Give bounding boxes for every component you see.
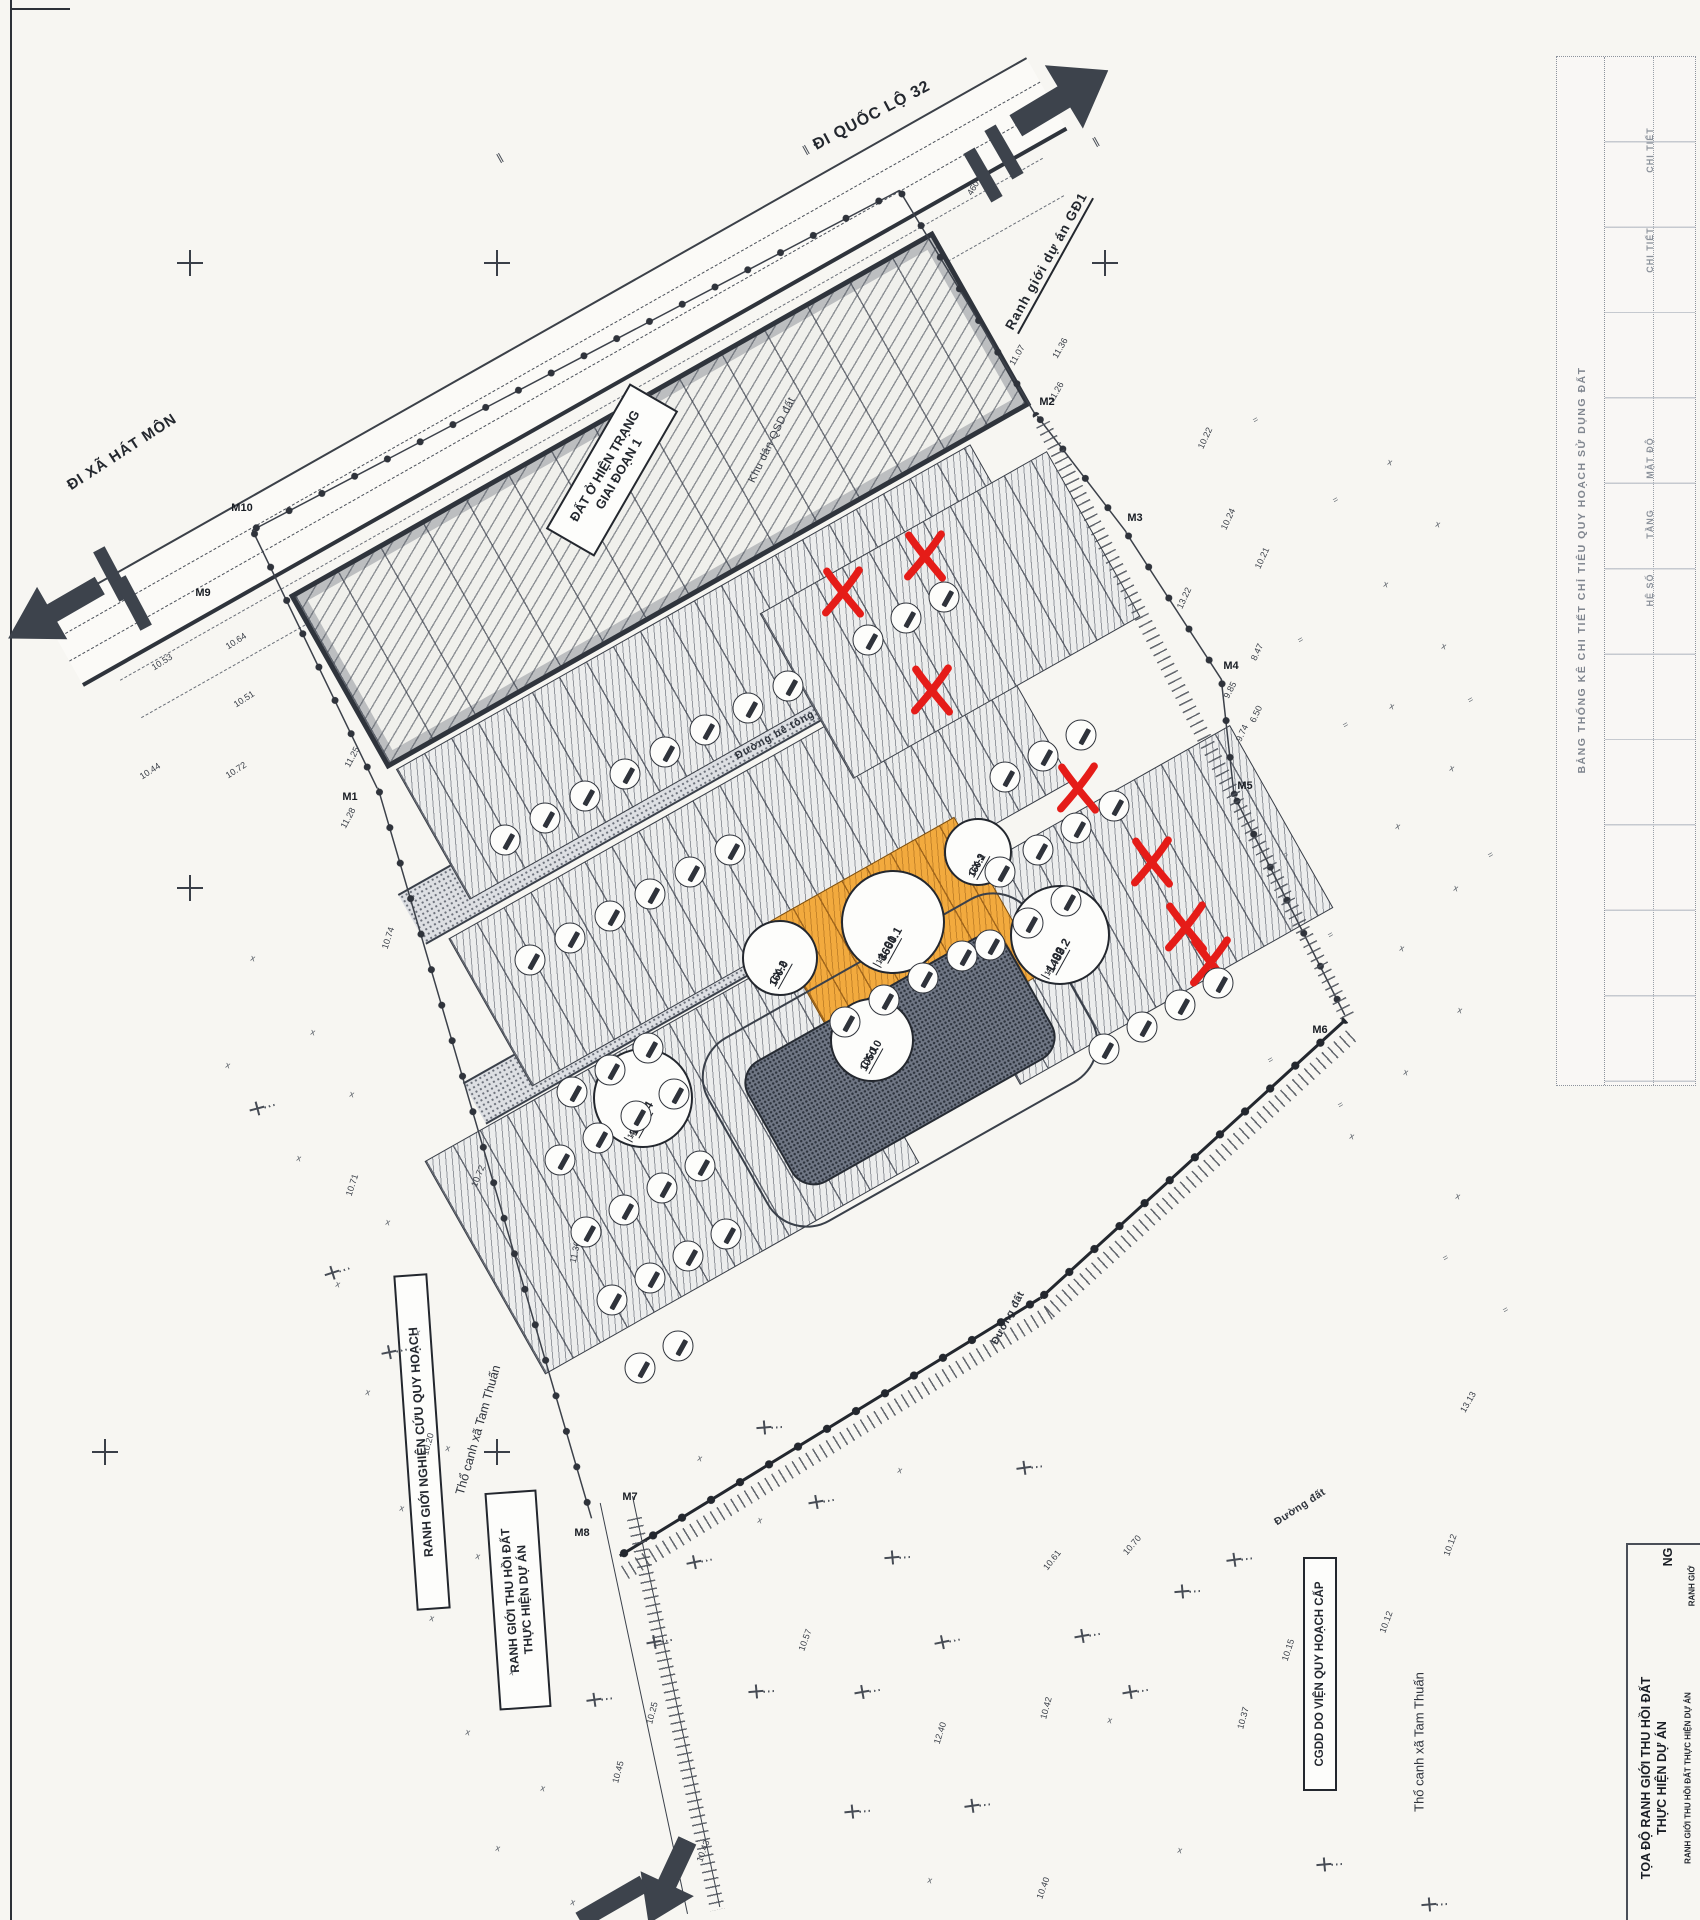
- lot-circle: [853, 625, 884, 656]
- lot-circle: [715, 835, 746, 866]
- vegetation-mark: x: [1435, 519, 1442, 530]
- survey-marker-m1: M1: [342, 791, 357, 803]
- lot-circle: [685, 1151, 716, 1182]
- vegetation-mark: x: [365, 1387, 372, 1398]
- vegetation-mark: x: [1453, 883, 1460, 894]
- site-plan-map: ĐI QUỐC LỘ 32 ĐI XÃ HÁT MÔN Ranh giới dự…: [0, 0, 1700, 1920]
- lot-circle: [975, 930, 1006, 961]
- lot-circle: [515, 945, 546, 976]
- lot-circle: [1066, 720, 1097, 751]
- lot-circle: [675, 857, 706, 888]
- elevation-label: 10.44: [138, 761, 162, 782]
- elevation-label: 10.40: [1034, 1876, 1051, 1901]
- lot-circle: [597, 1285, 628, 1316]
- elevation-label: 12.40: [932, 1721, 948, 1746]
- elevation-label: 10.61: [1041, 1548, 1063, 1572]
- grass-mark: =: [1296, 635, 1305, 646]
- grass-mark: =: [1336, 1100, 1345, 1111]
- grid-cross-icon: [1092, 250, 1118, 276]
- vegetation-mark: x: [1457, 1005, 1464, 1016]
- lot-circle: [929, 582, 960, 613]
- elevation-label: 10.71: [344, 1173, 360, 1198]
- lot-circle: [663, 1331, 694, 1362]
- table-cell: CHI TIẾT: [1645, 127, 1655, 173]
- lot-circle: [1165, 990, 1196, 1021]
- plot-circle-cx2: CX-2 160.0: [742, 920, 818, 996]
- elevation-label: 10.72: [224, 760, 248, 781]
- elevation-label: 10.70: [1121, 1533, 1143, 1557]
- red-x-mark: [909, 664, 955, 716]
- lot-circle: [1013, 908, 1044, 939]
- grass-mark: =: [1501, 1305, 1510, 1316]
- lot-circle: [711, 1219, 742, 1250]
- vegetation-mark: x: [296, 1153, 303, 1164]
- plot-circle-l01-content: L-01 3660.1 13 4: [874, 888, 912, 956]
- lot-circle: [545, 1145, 576, 1176]
- lot-circle: [1127, 1012, 1158, 1043]
- grave-symbol: [933, 1631, 963, 1652]
- embankment-ticks: [1044, 1027, 1361, 1318]
- survey-marker-m9: M9: [195, 587, 210, 599]
- lot-circle: [830, 1007, 861, 1038]
- vegetation-mark: x: [757, 1515, 764, 1526]
- lot-circle: [650, 737, 681, 768]
- plot-area: 1050.0: [857, 1038, 885, 1074]
- vegetation-mark: x: [445, 1443, 452, 1454]
- vegetation-mark: x: [465, 1727, 472, 1738]
- lot-circle: [985, 857, 1016, 888]
- grid-cross-icon: [484, 1439, 510, 1465]
- grass-mark: =: [1441, 1253, 1450, 1264]
- lot-circle: [690, 715, 721, 746]
- elevation-label: 10.37: [1235, 1706, 1250, 1730]
- coordinates-title-line2: THỰC HIỆN DỰ ÁN: [1654, 1677, 1670, 1880]
- corner-divider-line: [1626, 1545, 1628, 1920]
- grid-cross-icon: [177, 875, 203, 901]
- lot-circle: [610, 759, 641, 790]
- elevation-label: 10.12: [1441, 1533, 1458, 1558]
- lot-circle: [1028, 741, 1059, 772]
- red-x-mark: [902, 530, 948, 582]
- vegetation-mark: x: [1389, 701, 1396, 712]
- vegetation-mark: x: [1349, 1131, 1356, 1142]
- vegetation-mark: x: [1395, 821, 1402, 832]
- elevation-label: 10.24: [1219, 507, 1238, 532]
- lot-circle: [621, 1101, 652, 1132]
- plot-circle-l01: L-01 3660.1 13 4: [841, 870, 945, 974]
- lot-circle: [583, 1123, 614, 1154]
- table-cell: CHI TIẾT: [1645, 227, 1655, 273]
- grass-mark: =: [1326, 930, 1335, 941]
- vegetation-mark: x: [1403, 1067, 1410, 1078]
- grave-symbol: [844, 1803, 873, 1822]
- grave-symbol: [586, 1690, 615, 1710]
- label-tho-canh-2: Thổ canh xã Tam Thuấn: [1412, 1672, 1427, 1812]
- grave-symbol: [756, 1419, 784, 1437]
- elevation-label: 11.28: [338, 806, 357, 830]
- grave-symbol: [685, 1551, 715, 1572]
- elevation-label: 8.47: [1249, 642, 1265, 662]
- vegetation-mark: x: [310, 1027, 317, 1038]
- vegetation-mark: x: [399, 1503, 406, 1514]
- elevation-label: 6.50: [1248, 704, 1264, 724]
- elevation-label: 10.15: [1280, 1638, 1296, 1663]
- station-tick: [802, 145, 809, 155]
- lot-circle: [633, 1033, 664, 1064]
- lot-circle: [635, 879, 666, 910]
- lot-circle: [990, 762, 1021, 793]
- grave-symbol: [884, 1549, 912, 1567]
- lot-circle: [733, 693, 764, 724]
- vegetation-mark: x: [1387, 457, 1394, 468]
- elevation-label: 13.13: [1458, 1390, 1478, 1415]
- lot-circle: [659, 1079, 690, 1110]
- grave-symbol: [248, 1097, 278, 1119]
- elevation-label: 10.57: [796, 1628, 813, 1653]
- grave-symbol: [853, 1682, 882, 1702]
- vegetation-mark: x: [495, 1843, 502, 1854]
- survey-marker-m6: M6: [1312, 1024, 1327, 1036]
- vegetation-mark: x: [429, 1613, 436, 1624]
- vegetation-mark: x: [1455, 1191, 1462, 1202]
- label-tho-canh-1: Thổ canh xã Tam Thuấn: [453, 1363, 503, 1496]
- vegetation-mark: x: [897, 1465, 904, 1476]
- coordinates-title: TỌA ĐỘ RANH GIỚI THU HỒI ĐẤT THỰC HIỆN D…: [1638, 1677, 1671, 1880]
- table-cell: HỆ SỐ: [1645, 573, 1655, 606]
- grave-symbol: [1016, 1458, 1045, 1478]
- grave-symbol: [1421, 1896, 1449, 1914]
- elevation-label: 11.36: [1050, 336, 1070, 360]
- vegetation-mark: x: [1177, 1845, 1184, 1856]
- table-cell: MẶT ĐỘ: [1645, 437, 1655, 479]
- grass-mark: =: [1341, 720, 1350, 731]
- label-box-cgdd-text: CGDD DO VIỆN QUY HOẠCH CẤP: [1313, 1559, 1327, 1789]
- grid-cross-icon: [92, 1439, 118, 1465]
- edge-text-fragment-1: NG: [1661, 1548, 1675, 1567]
- label-box-cgdd: CGDD DO VIỆN QUY HOẠCH CẤP: [1303, 1557, 1337, 1791]
- survey-marker-m4: M4: [1223, 660, 1238, 672]
- survey-marker-m2: M2: [1039, 396, 1054, 408]
- lot-circle: [1061, 813, 1092, 844]
- label-box-study-boundary-text: RANH GIỚI NGHIÊN CỨU QUY HOẠCH: [403, 1276, 442, 1608]
- vegetation-mark: x: [1107, 1715, 1114, 1726]
- survey-marker-m7: M7: [622, 1491, 637, 1503]
- elevation-label: 10.45: [610, 1760, 625, 1784]
- vegetation-mark: x: [250, 953, 257, 964]
- grass-mark: =: [1251, 415, 1260, 426]
- red-x-mark: [820, 566, 866, 618]
- coordinates-subtitle: RANH GIỚI THU HỒI ĐẤT THỰC HIỆN DỰ ÁN: [1684, 1692, 1693, 1864]
- edge-text-fragment-2: RANH GIỚ: [1688, 1566, 1697, 1607]
- vegetation-mark: x: [475, 1551, 482, 1562]
- station-tick: [1092, 137, 1099, 147]
- grave-symbol: [1316, 1856, 1344, 1874]
- coordinates-title-line1: TỌA ĐỘ RANH GIỚI THU HỒI ĐẤT: [1638, 1677, 1654, 1880]
- station-tick: [496, 153, 503, 163]
- elevation-label: 10.42: [1038, 1696, 1053, 1720]
- table-header-text: BẢNG THỐNG KÊ CHI TIẾT CHỈ TIÊU QUY HOẠC…: [1576, 366, 1588, 773]
- grave-symbol: [1174, 1583, 1202, 1601]
- elevation-label: 10.74: [380, 926, 396, 951]
- lot-circle: [773, 671, 804, 702]
- vegetation-mark: x: [927, 1875, 934, 1886]
- lot-circle: [891, 603, 922, 634]
- elevation-label: 10.22: [1196, 426, 1215, 451]
- lot-circle: [947, 941, 978, 972]
- elevation-label: 9.74: [1234, 723, 1250, 743]
- lot-circle: [595, 901, 626, 932]
- lot-circle: [1203, 968, 1234, 999]
- grave-symbol: [1073, 1626, 1102, 1646]
- lot-circle: [595, 1055, 626, 1086]
- survey-marker-m10: M10: [231, 502, 252, 514]
- corner-divider-line-top: [1626, 1543, 1700, 1545]
- grass-mark: =: [1486, 850, 1495, 861]
- plot-circle-cx1-content: CX-1 1050.0: [857, 1013, 887, 1068]
- vegetation-mark: x: [540, 1783, 547, 1794]
- table-cell: TẦNG: [1645, 509, 1655, 539]
- road-end-bar: [575, 1876, 648, 1920]
- label-dirt-road-2: Đường đất: [1272, 1486, 1328, 1528]
- lot-circle: [1099, 791, 1130, 822]
- grass-mark: =: [1466, 695, 1475, 706]
- lot-circle: [609, 1195, 640, 1226]
- lot-circle: [555, 923, 586, 954]
- grid-cross-icon: [177, 250, 203, 276]
- elevation-label: 13.22: [1175, 586, 1194, 611]
- label-hat-mon: ĐI XÃ HÁT MÔN: [64, 410, 180, 494]
- grass-mark: =: [1331, 495, 1340, 506]
- grave-symbol: [807, 1492, 836, 1512]
- lot-circle: [635, 1263, 666, 1294]
- vegetation-mark: x: [697, 1453, 704, 1464]
- elevation-label: 10.51: [232, 689, 256, 710]
- lot-circle: [1023, 835, 1054, 866]
- lot-circle: [571, 1217, 602, 1248]
- lot-circle: [1089, 1034, 1120, 1065]
- vegetation-mark: x: [225, 1060, 232, 1071]
- survey-marker-m5: M5: [1237, 780, 1252, 792]
- elevation-label: 10.21: [1253, 546, 1272, 571]
- vegetation-mark: x: [1383, 579, 1390, 590]
- vegetation-mark: x: [385, 1217, 392, 1228]
- red-x-mark: [1055, 762, 1101, 814]
- vegetation-mark: x: [349, 1089, 356, 1100]
- survey-marker-m8: M8: [574, 1527, 589, 1539]
- lot-circle: [570, 781, 601, 812]
- vegetation-mark: x: [1449, 763, 1456, 774]
- elevation-label: 11.07: [1007, 343, 1027, 367]
- frame-left-line: [10, 0, 12, 1920]
- vegetation-mark: x: [1399, 943, 1406, 954]
- grave-symbol: [748, 1683, 776, 1701]
- red-x-mark: [1129, 836, 1175, 888]
- frame-top-line: [10, 8, 70, 10]
- grave-symbol: [645, 1632, 674, 1652]
- lot-circle: [908, 963, 939, 994]
- lot-circle: [647, 1173, 678, 1204]
- elevation-label: 10.12: [1377, 1610, 1394, 1635]
- grass-mark: =: [1266, 1055, 1275, 1066]
- grave-symbol: [964, 1796, 993, 1816]
- lot-circle: [625, 1353, 656, 1384]
- plot-circle-cx2-content: CX-2 160.0: [766, 933, 793, 982]
- survey-marker-m3: M3: [1127, 512, 1142, 524]
- grave-symbol: [1226, 1550, 1255, 1570]
- label-box-study-boundary: RANH GIỚI NGHIÊN CỨU QUY HOẠCH: [393, 1273, 450, 1611]
- grid-cross-icon: [484, 250, 510, 276]
- grave-symbol: [1121, 1682, 1150, 1702]
- lot-circle: [869, 985, 900, 1016]
- lot-circle: [557, 1077, 588, 1108]
- lot-circle: [673, 1241, 704, 1272]
- vegetation-mark: x: [1441, 641, 1448, 652]
- grave-symbol: [323, 1260, 354, 1284]
- lot-circle: [490, 825, 521, 856]
- table-row-lines: [1605, 57, 1695, 1085]
- lot-circle: [530, 803, 561, 834]
- vegetation-mark: x: [570, 1897, 577, 1908]
- label-box-land-recovery-boundary: RANH GIỚI THU HỒI ĐẤT THỰC HIỆN DỰ ÁN: [484, 1489, 551, 1710]
- lot-circle: [1051, 886, 1082, 917]
